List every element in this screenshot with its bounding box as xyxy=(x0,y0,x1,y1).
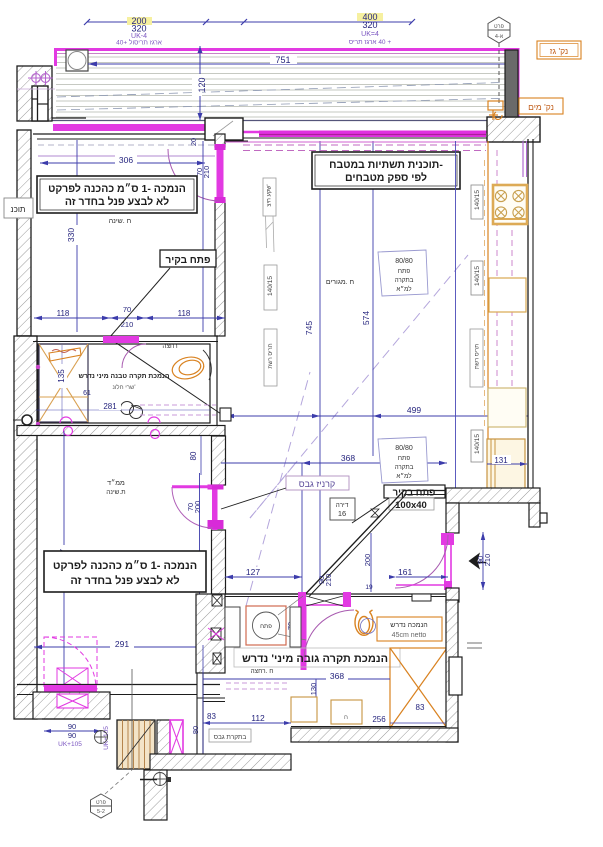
svg-text:ח .מגורים: ח .מגורים xyxy=(326,279,355,286)
svg-text:הנמכת תקרה טבנה מיני נדרש: הנמכת תקרה טבנה מיני נדרש xyxy=(79,373,170,380)
svg-text:נק' מים: נק' מים xyxy=(528,102,554,112)
svg-text:161: 161 xyxy=(398,567,412,577)
svg-text:368: 368 xyxy=(341,453,355,463)
svg-text:140/15: 140/15 xyxy=(267,276,274,296)
svg-text:499: 499 xyxy=(407,405,421,415)
svg-text:פתח בקיר: פתח בקיר xyxy=(393,488,436,499)
svg-text:281: 281 xyxy=(103,402,117,411)
svg-text:UK+105: UK+105 xyxy=(103,726,110,750)
svg-text:4-א: 4-א xyxy=(495,34,504,40)
svg-text:256: 256 xyxy=(372,715,386,724)
svg-text:לא לבצע פנל בחדר זה: לא לבצע פנל בחדר זה xyxy=(70,574,179,587)
svg-text:UK=4: UK=4 xyxy=(361,31,379,38)
svg-text:80: 80 xyxy=(189,451,198,460)
svg-text:קרניז גבס: קרניז גבס xyxy=(299,479,335,489)
svg-text:ח .רחצה: ח .רחצה xyxy=(250,668,273,675)
svg-text:130: 130 xyxy=(309,683,318,696)
svg-text:80: 80 xyxy=(191,726,200,734)
svg-text:פתח: פתח xyxy=(398,455,410,462)
svg-text:118: 118 xyxy=(57,309,70,318)
svg-text:320: 320 xyxy=(362,20,377,30)
svg-text:90: 90 xyxy=(68,731,76,740)
svg-text:‫ארגז תריסול +40‬: ‫ארגז תריסול +40‬ xyxy=(116,39,162,47)
svg-text:70: 70 xyxy=(123,305,131,314)
svg-text:306: 306 xyxy=(119,155,133,165)
svg-text:דירה: דירה xyxy=(336,502,349,509)
svg-text:140/15: 140/15 xyxy=(474,434,481,454)
svg-text:120: 120 xyxy=(197,77,207,92)
svg-text:140/15: 140/15 xyxy=(474,190,481,210)
svg-text:200: 200 xyxy=(193,501,202,514)
svg-text:210: 210 xyxy=(121,320,134,329)
svg-text:200: 200 xyxy=(363,554,372,567)
svg-text:751: 751 xyxy=(275,55,290,65)
svg-text:90: 90 xyxy=(476,556,485,564)
svg-text:131: 131 xyxy=(494,456,508,465)
svg-text:ח: ח xyxy=(344,715,348,721)
svg-text:140/15: 140/15 xyxy=(474,266,481,286)
svg-text:פרט: פרט xyxy=(96,800,107,806)
svg-text:תריס רשת: תריס רשת xyxy=(268,343,274,368)
svg-text:100x40: 100x40 xyxy=(395,500,427,511)
svg-text:83: 83 xyxy=(416,703,425,712)
svg-text:פתח בקיר: פתח בקיר xyxy=(166,255,211,266)
svg-text:בתקרה: בתקרה xyxy=(395,277,414,284)
svg-text:למ״א: למ״א xyxy=(396,285,412,293)
svg-text:פתח: פתח xyxy=(260,624,272,630)
svg-text:61: 61 xyxy=(83,390,91,397)
svg-text:נק' גז: נק' גז xyxy=(550,46,568,56)
svg-text:45cm netto: 45cm netto xyxy=(392,632,427,639)
svg-text:תוכנ: תוכנ xyxy=(11,205,26,214)
svg-text:ת.שינה: ת.שינה xyxy=(106,489,125,496)
svg-text:368: 368 xyxy=(330,671,344,681)
svg-text:UK+105: UK+105 xyxy=(58,741,82,748)
svg-text:תוכנית תשתיות במטבח-: תוכנית תשתיות במטבח- xyxy=(329,159,443,171)
svg-text:745: 745 xyxy=(304,321,314,335)
svg-text:למ״א: למ״א xyxy=(396,472,412,480)
svg-text:הנמכה -1 ס״מ כהכנה לפרקט: הנמכה -1 ס״מ כהכנה לפרקט xyxy=(48,183,186,195)
svg-text:פרט: פרט xyxy=(494,24,505,30)
svg-text:לא לבצע פנל בחדר זה: לא לבצע פנל בחדר זה xyxy=(65,196,169,208)
svg-text:135: 135 xyxy=(57,369,66,383)
svg-text:בתקרה: בתקרה xyxy=(395,464,414,471)
svg-text:הנמכה נדרש: הנמכה נדרש xyxy=(390,622,427,629)
svg-text:127: 127 xyxy=(246,567,260,577)
svg-text:הנמכה -1 ס״מ כהכנה לפרקט: הנמכה -1 ס״מ כהכנה לפרקט xyxy=(53,559,197,572)
svg-text:לפי ספק מטבחים: לפי ספק מטבחים xyxy=(345,172,427,184)
svg-text:291: 291 xyxy=(115,639,129,649)
svg-text:320: 320 xyxy=(131,24,146,34)
svg-text:הנמכת תקרה גובה מיני' נדרש: הנמכת תקרה גובה מיני' נדרש xyxy=(242,653,388,665)
svg-text:תריס רשת: תריס רשת xyxy=(475,344,481,369)
svg-text:בתקרת גבס: בתקרת גבס xyxy=(214,734,247,741)
svg-text:שרי חלונ': שרי חלונ' xyxy=(113,383,136,391)
svg-text:112: 112 xyxy=(251,713,265,723)
svg-text:330: 330 xyxy=(66,228,76,242)
svg-text:118: 118 xyxy=(178,309,191,318)
svg-text:רחצה: רחצה xyxy=(162,343,177,350)
svg-text:90: 90 xyxy=(68,722,76,731)
svg-text:210: 210 xyxy=(324,574,333,587)
svg-text:ח .שינה: ח .שינה xyxy=(109,218,132,225)
svg-text:83: 83 xyxy=(207,712,216,721)
svg-text:574: 574 xyxy=(361,311,371,325)
svg-text:‫+ 40 ארגז תריס‬: ‫+ 40 ארגז תריס‬ xyxy=(349,39,392,46)
svg-text:5-2: 5-2 xyxy=(97,809,105,815)
svg-text:80/80: 80/80 xyxy=(395,258,413,265)
svg-text:16: 16 xyxy=(338,509,346,518)
svg-text:19: 19 xyxy=(365,584,373,591)
svg-text:פתח: פתח xyxy=(398,268,410,275)
svg-text:ממ״ד: ממ״ד xyxy=(107,479,125,487)
svg-text:80/80: 80/80 xyxy=(395,445,413,452)
svg-text:שקע חיצ': שקע חיצ' xyxy=(267,184,273,206)
